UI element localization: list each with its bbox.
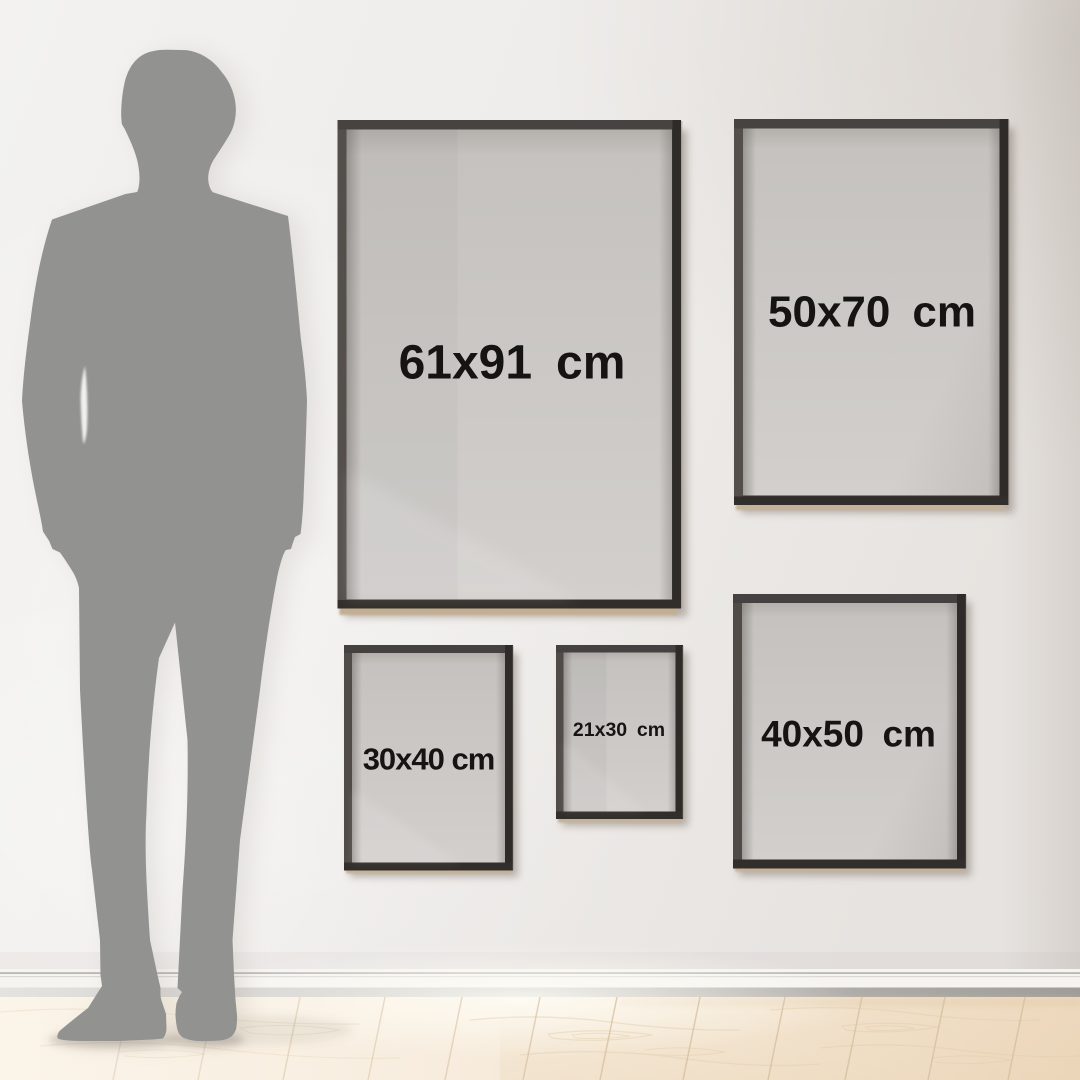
svg-text:40x50 cm: 40x50 cm (761, 714, 936, 755)
svg-text:50x70 cm: 50x70 cm (768, 288, 976, 337)
svg-text:61x91 cm: 61x91 cm (399, 337, 626, 390)
svg-text:30x40 cm: 30x40 cm (363, 742, 495, 777)
svg-text:21x30 cm: 21x30 cm (573, 719, 665, 741)
